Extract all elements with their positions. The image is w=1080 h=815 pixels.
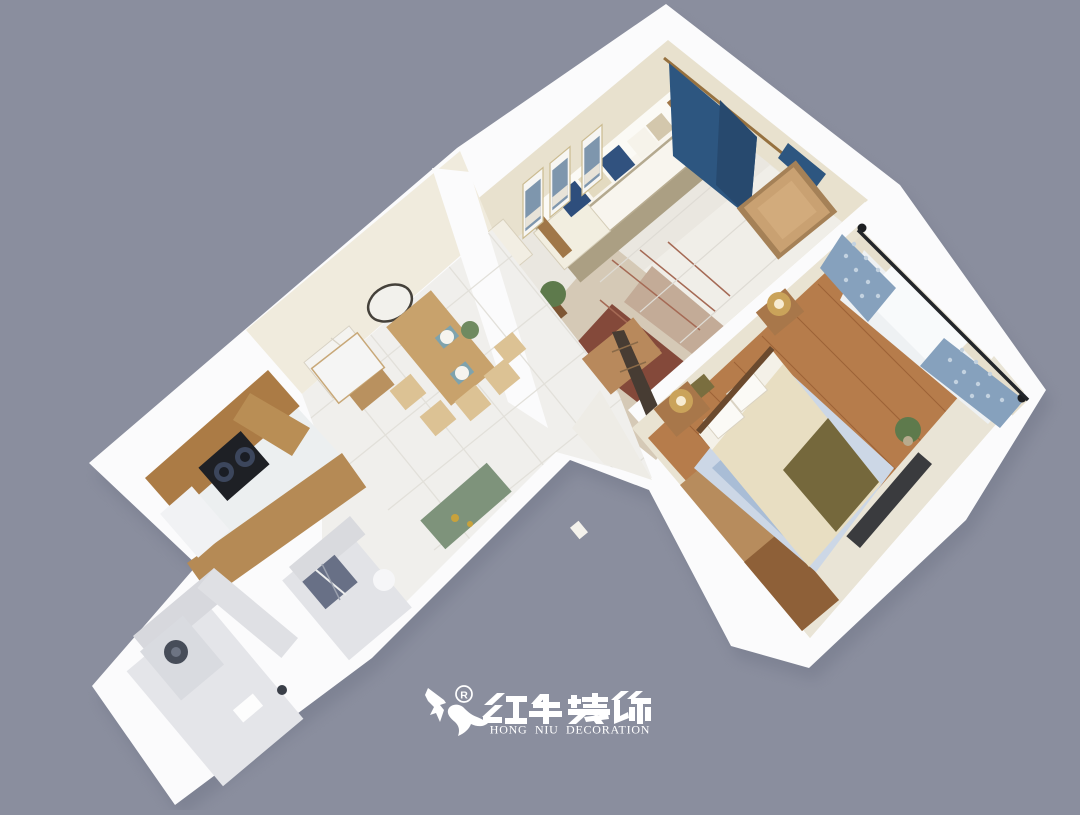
svg-text:HONG NIU DECORATION: HONG NIU DECORATION [490,723,650,737]
svg-text:R: R [460,690,468,702]
